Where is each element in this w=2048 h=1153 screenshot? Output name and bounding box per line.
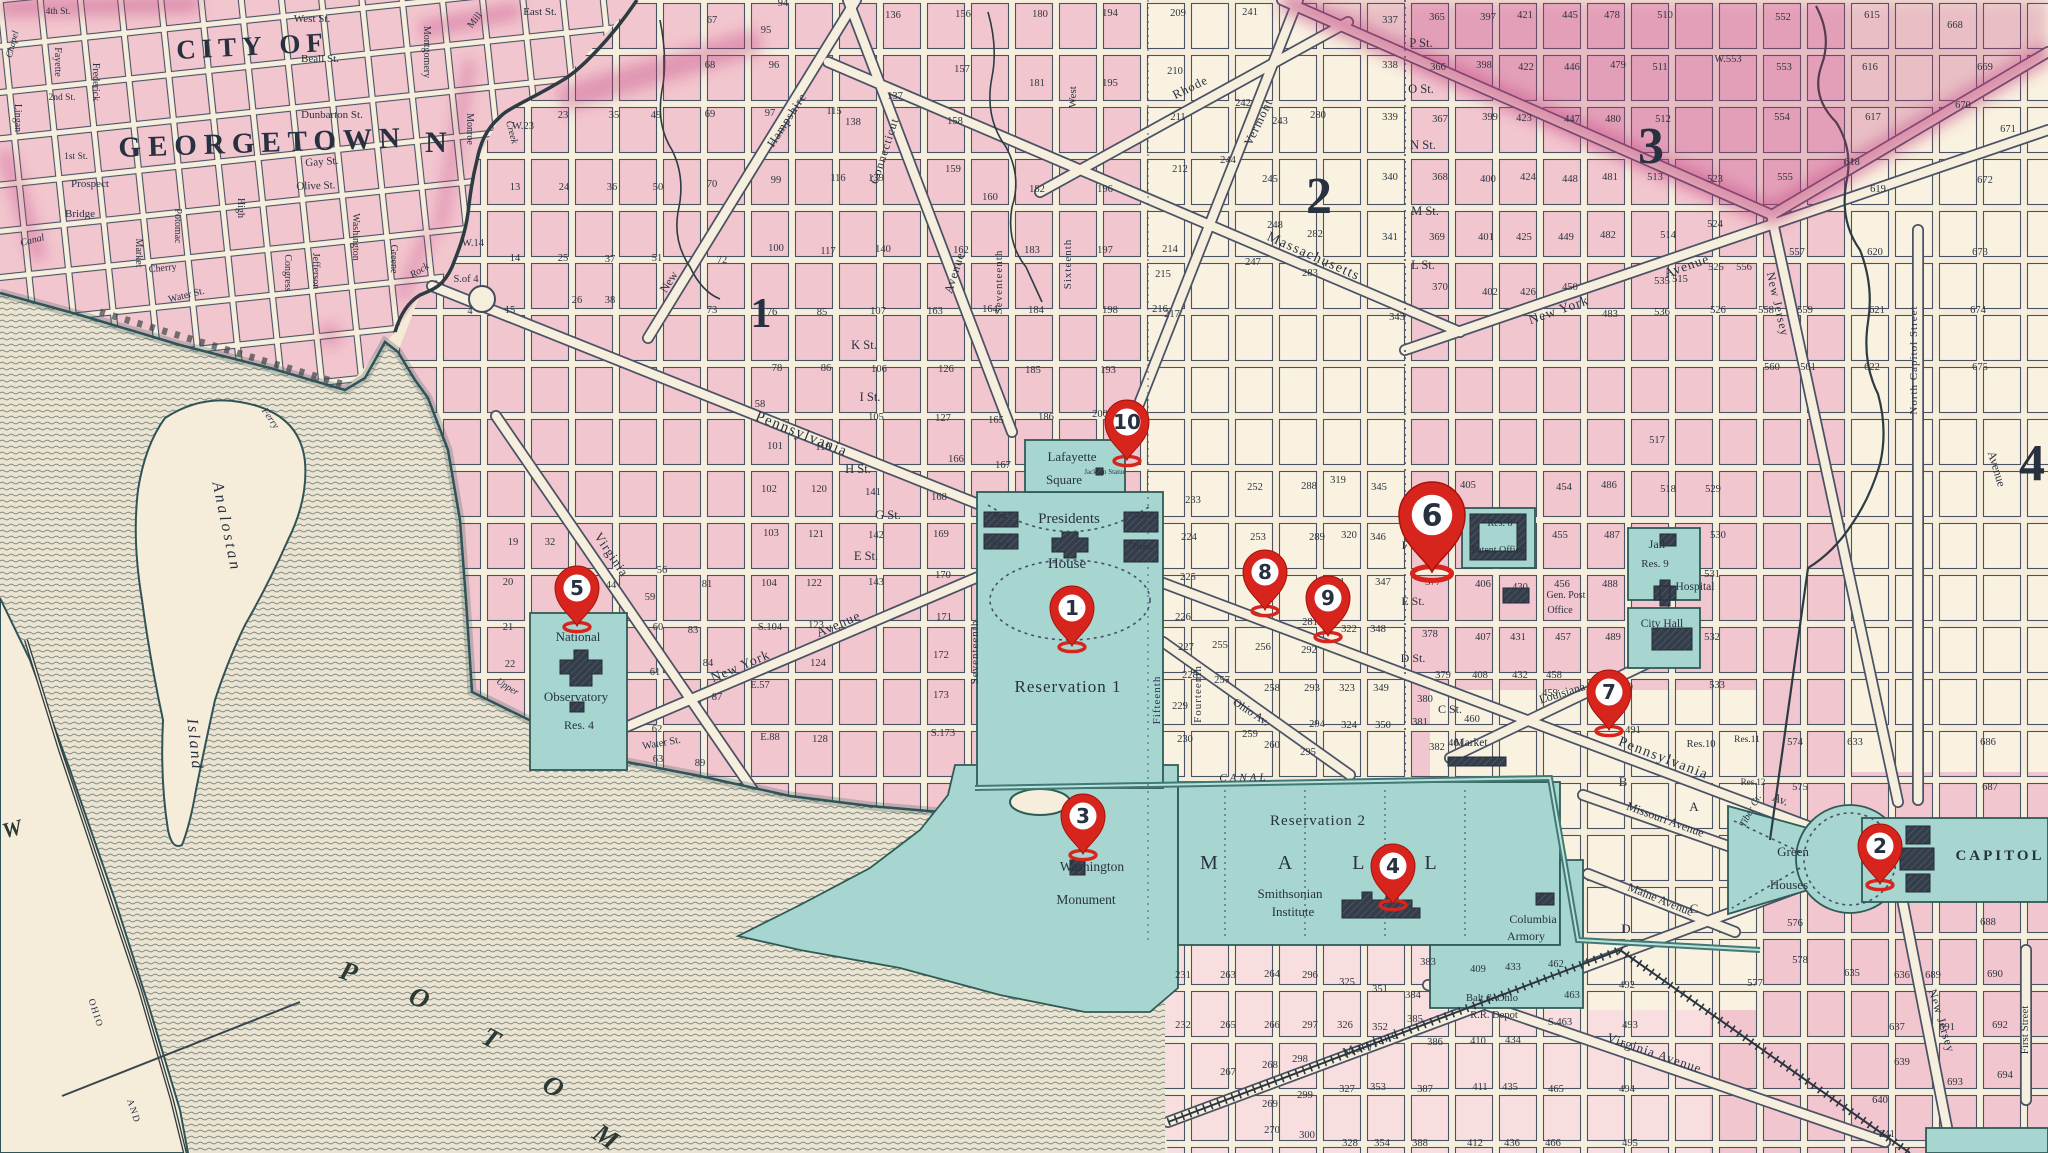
block-number: 421 — [1517, 10, 1533, 21]
block-number: 156 — [955, 9, 971, 20]
block-number: 107 — [870, 306, 886, 317]
block-number: 346 — [1370, 532, 1386, 543]
block-number: 81 — [702, 579, 713, 590]
block-number: 410 — [1470, 1036, 1486, 1047]
pin-number: 10 — [1113, 410, 1141, 434]
map-label: 2nd St. — [49, 93, 76, 103]
block-number: 693 — [1947, 1077, 1963, 1088]
map-label: M St. — [1411, 204, 1439, 218]
map-label: North Capitol Street — [1908, 305, 1920, 414]
map-label: I St. — [860, 390, 881, 404]
map-label: Bridge — [65, 208, 95, 220]
map-label: Res.12 — [1741, 777, 1766, 787]
block-number: 320 — [1341, 530, 1357, 541]
block-number: 169 — [933, 529, 949, 540]
block-number: 197 — [1097, 245, 1113, 256]
block-number: 256 — [1255, 642, 1271, 653]
block-number: 480 — [1605, 114, 1621, 125]
block-number: 140 — [875, 244, 891, 255]
map-label: C — [1690, 901, 1699, 916]
block-number: 267 — [1220, 1067, 1236, 1078]
block-number: 671 — [2000, 124, 2016, 135]
block-number: 116 — [830, 173, 845, 184]
map-label: Montgomery — [421, 26, 432, 78]
map-label: State — [1134, 510, 1151, 520]
block-number: 369 — [1429, 232, 1445, 243]
map-label: G St. — [875, 508, 901, 522]
block-number: 117 — [820, 246, 835, 257]
block-number: 105 — [868, 412, 884, 423]
block-number: 575 — [1792, 782, 1808, 793]
block-number: 248 — [1267, 220, 1283, 231]
block-number: 426 — [1520, 287, 1536, 298]
map-label: House — [1048, 556, 1087, 572]
block-number: 73 — [707, 305, 718, 316]
map-label: H St. — [845, 462, 871, 476]
block-number: 483 — [1602, 309, 1618, 320]
block-number: 399 — [1482, 112, 1498, 123]
map-label: E St. — [1401, 594, 1424, 608]
block-number: 553 — [1776, 62, 1792, 73]
block-number: 411 — [1472, 1082, 1487, 1093]
map-label: 2 — [1306, 168, 1332, 225]
block-number: 380 — [1417, 694, 1433, 705]
block-number: 433 — [1505, 962, 1521, 973]
block-number: 233 — [1185, 495, 1201, 506]
block-number: 49 — [651, 110, 662, 121]
block-number: 673 — [1972, 247, 1988, 258]
pin-number: 8 — [1258, 560, 1272, 584]
block-number: 408 — [1472, 670, 1488, 681]
block-number: 224 — [1181, 532, 1198, 543]
map-label: Smithsonian — [1257, 886, 1323, 901]
block-number: 300 — [1299, 1130, 1315, 1141]
map-label: Treas. — [1132, 541, 1153, 551]
block-number: 288 — [1301, 481, 1317, 492]
block-number: S.463 — [1548, 1017, 1572, 1028]
block-number: 180 — [1032, 9, 1048, 20]
block-number: 456 — [1554, 579, 1570, 590]
block-number: 157 — [954, 64, 970, 75]
block-number: 445 — [1562, 10, 1578, 21]
block-number: 252 — [1247, 482, 1263, 493]
block-number: 338 — [1382, 60, 1398, 71]
block-number: 84 — [703, 658, 714, 669]
block-number: 61 — [650, 667, 661, 678]
pin-number: 5 — [570, 576, 584, 600]
block-number: 514 — [1660, 230, 1677, 241]
block-number: 639 — [1894, 1057, 1910, 1068]
map-label: Frederick — [90, 63, 101, 101]
map-label: 1 — [751, 291, 772, 337]
block-number: 354 — [1374, 1138, 1391, 1149]
block-number: 397 — [1480, 12, 1496, 23]
block-number: 532 — [1704, 632, 1720, 643]
block-number: 620 — [1867, 247, 1883, 258]
block-number: 37 — [605, 254, 616, 265]
map-label: D St. — [1401, 651, 1426, 665]
map-label: City Hall — [1641, 618, 1684, 630]
map-label: A — [1689, 799, 1699, 814]
block-number: 294 — [1309, 719, 1326, 730]
block-number: 430 — [1512, 582, 1528, 593]
block-number: 495 — [1622, 1138, 1638, 1149]
block-number: 230 — [1177, 734, 1193, 745]
map-label: West St. — [294, 13, 331, 25]
block-number: 51 — [652, 253, 663, 264]
block-number: 194 — [1102, 8, 1119, 19]
block-number: 479 — [1610, 60, 1626, 71]
block-number: 21 — [503, 622, 514, 633]
block-number: 172 — [933, 650, 949, 661]
block-number: 50 — [653, 182, 664, 193]
map-label: Seventeenth — [993, 250, 1005, 315]
block-number: 13 — [510, 182, 521, 193]
block-number: 617 — [1865, 112, 1881, 123]
map-label: Res.11 — [1734, 735, 1760, 745]
block-number: 386 — [1427, 1037, 1443, 1048]
block-number: 668 — [1947, 20, 1963, 31]
pin-number: 7 — [1602, 680, 1616, 704]
map-label: Washington — [1060, 859, 1124, 874]
block-number: 559 — [1797, 305, 1813, 316]
map-label: Seventeenth — [969, 620, 981, 685]
columbia-armory-building — [1536, 893, 1554, 905]
map-label: CANAL — [1219, 772, 1268, 785]
block-number: 282 — [1307, 229, 1323, 240]
block-number: 296 — [1302, 970, 1318, 981]
block-number: 577 — [1747, 978, 1763, 989]
block-number: 462 — [1548, 959, 1564, 970]
map-label: Res. 8 — [1488, 518, 1513, 529]
block-number: 209 — [1170, 8, 1186, 19]
block-number: 96 — [769, 60, 780, 71]
block-number: 436 — [1504, 1138, 1520, 1149]
map-label: East St. — [523, 6, 557, 18]
block-number: 640 — [1872, 1095, 1888, 1106]
block-number: 59 — [645, 592, 656, 603]
map-label: Columbia — [1509, 912, 1557, 926]
block-number: 494 — [1619, 1084, 1636, 1095]
block-number: 323 — [1339, 683, 1355, 694]
block-number: 97 — [765, 108, 776, 119]
map-label: Lafayette — [1047, 449, 1096, 464]
pin-number: 4 — [1386, 854, 1400, 878]
map-label: Balt & Ohio — [1466, 993, 1518, 1004]
block-number: 686 — [1980, 737, 1996, 748]
block-number: 226 — [1175, 612, 1191, 623]
block-number: 244 — [1220, 155, 1237, 166]
map-label: Patent Office — [1472, 545, 1525, 556]
block-number: 215 — [1155, 269, 1171, 280]
block-number: 517 — [1649, 435, 1665, 446]
block-number: 555 — [1777, 172, 1793, 183]
map-label: Jefferson — [310, 253, 321, 289]
block-number: 70 — [707, 179, 718, 190]
block-number: 217 — [1164, 309, 1180, 320]
block-number: 326 — [1337, 1020, 1353, 1031]
map-label: Lingan — [12, 104, 23, 132]
block-number: 211 — [1170, 112, 1185, 123]
block-number: 68 — [705, 60, 716, 71]
block-number: 319 — [1330, 475, 1346, 486]
map-label: C St. — [1438, 702, 1462, 716]
block-number: 465 — [1548, 1084, 1564, 1095]
block-number: 56 — [657, 565, 668, 576]
block-number: 126 — [938, 364, 954, 375]
map-label: Navy — [991, 538, 1010, 548]
block-number: 163 — [927, 306, 943, 317]
block-number: 530 — [1710, 530, 1726, 541]
block-number: 381 — [1412, 717, 1428, 728]
map-label: Fifteenth — [1151, 676, 1163, 725]
block-number: 94 — [778, 0, 789, 9]
block-number: 229 — [1172, 701, 1188, 712]
block-number: 350 — [1375, 720, 1391, 731]
block-number: 488 — [1602, 579, 1618, 590]
block-number: 578 — [1792, 955, 1808, 966]
block-number: 405 — [1460, 480, 1476, 491]
block-number: 241 — [1242, 7, 1258, 18]
block-number: 225 — [1180, 572, 1196, 583]
block-number: 60 — [653, 622, 664, 633]
block-number: 463 — [1564, 990, 1580, 1001]
block-number: 23 — [558, 110, 569, 121]
map-label: Jail — [1649, 537, 1666, 551]
block-number: 89 — [695, 758, 706, 769]
block-number: 173 — [933, 690, 949, 701]
block-number: 265 — [1220, 1020, 1236, 1031]
block-number: 283 — [1302, 268, 1318, 279]
block-number: 366 — [1430, 62, 1446, 73]
map-label: Armory — [1507, 929, 1545, 943]
block-number: 424 — [1520, 172, 1537, 183]
block-number: 423 — [1516, 113, 1532, 124]
block-number: 688 — [1980, 917, 1996, 928]
block-number: 245 — [1262, 174, 1278, 185]
block-number: 458 — [1546, 670, 1562, 681]
block-number: 635 — [1844, 968, 1860, 979]
block-number: 158 — [947, 116, 963, 127]
block-number: 407 — [1475, 632, 1491, 643]
block-number: 184 — [1028, 305, 1045, 316]
block-number: 103 — [763, 528, 779, 539]
block-number: 536 — [1654, 307, 1670, 318]
block-number: 36 — [607, 182, 618, 193]
block-number: 353 — [1370, 1082, 1386, 1093]
block-number: 87 — [712, 692, 723, 703]
block-number: 511 — [1652, 62, 1667, 73]
block-number: 687 — [1982, 782, 1998, 793]
map-label: 4th St. — [46, 7, 71, 17]
block-number: 337 — [1382, 15, 1398, 26]
block-number: 196 — [1097, 184, 1113, 195]
block-number: 619 — [1870, 184, 1886, 195]
map-label: Dunbarton St. — [301, 109, 363, 121]
block-number: 523 — [1707, 174, 1723, 185]
map-label: Office — [1547, 605, 1573, 616]
block-number: 489 — [1605, 632, 1621, 643]
block-number: 576 — [1787, 918, 1803, 929]
block-number: E.57 — [750, 680, 770, 691]
block-number: 518 — [1660, 484, 1676, 495]
pin-number: 9 — [1321, 586, 1335, 610]
block-number: S.173 — [931, 728, 955, 739]
block-number: 20 — [503, 577, 514, 588]
block-number: 378 — [1422, 629, 1438, 640]
block-number: 269 — [1262, 1099, 1278, 1110]
block-number: 669 — [1977, 62, 1993, 73]
map-label: Fayette — [52, 47, 63, 77]
block-number: 694 — [1997, 1070, 2014, 1081]
block-number: 574 — [1787, 737, 1804, 748]
map-label: N — [425, 126, 447, 159]
capitol-building-center — [1900, 848, 1934, 870]
block-number: 101 — [767, 441, 783, 452]
block-number: 383 — [1420, 957, 1436, 968]
historic-dc-map[interactable]: W.23233549676869949596971151324365070991… — [0, 0, 2048, 1153]
block-number: 232 — [1175, 1020, 1191, 1031]
block-number: 412 — [1467, 1138, 1483, 1149]
block-number: 257 — [1214, 675, 1230, 686]
block-number: 183 — [1024, 245, 1040, 256]
map-label: Houses — [1770, 877, 1808, 892]
map-label: Res. 4 — [564, 718, 594, 732]
block-number: 343 — [1389, 312, 1405, 323]
block-number: 198 — [1102, 305, 1118, 316]
block-number: 402 — [1482, 287, 1498, 298]
map-label: E St. — [854, 549, 878, 563]
block-number: 193 — [1100, 365, 1116, 376]
block-number: 35 — [609, 110, 620, 121]
block-number: 552 — [1775, 12, 1791, 23]
map-label: K St. — [851, 338, 877, 352]
block-number: 280 — [1310, 110, 1326, 121]
block-number: 385 — [1407, 1014, 1423, 1025]
block-number: 4 — [467, 306, 473, 317]
block-number: 115 — [826, 106, 841, 117]
block-number: 100 — [768, 243, 784, 254]
block-number: W.14 — [462, 238, 485, 249]
block-number: 690 — [1987, 969, 2003, 980]
map-label: Jackson Statue — [1084, 468, 1125, 476]
block-number: 432 — [1512, 670, 1528, 681]
block-number: 266 — [1264, 1020, 1280, 1031]
map-label: Congress — [282, 254, 293, 291]
block-number: 672 — [1977, 175, 1993, 186]
map-label: Market — [133, 239, 144, 268]
block-number: 388 — [1412, 1138, 1428, 1149]
block-number: 44 — [606, 580, 617, 591]
map-label: High — [235, 198, 246, 218]
map-label: Observatory — [544, 689, 609, 704]
block-number: 615 — [1864, 10, 1880, 21]
block-number: 186 — [1038, 412, 1054, 423]
block-number: 136 — [885, 10, 901, 21]
block-number: 491 — [1625, 725, 1641, 736]
block-number: 120 — [811, 484, 827, 495]
block-number: 167 — [995, 460, 1011, 471]
block-number: 181 — [1029, 78, 1045, 89]
block-number: 616 — [1862, 62, 1878, 73]
block-number: 270 — [1264, 1125, 1280, 1136]
map-label: Monument — [1056, 892, 1115, 907]
block-number: 493 — [1622, 1020, 1638, 1031]
pin-number: 3 — [1076, 804, 1090, 828]
block-number: 86 — [821, 363, 832, 374]
block-number: S.104 — [758, 622, 783, 633]
block-number: 69 — [705, 109, 716, 120]
map-label: 3 — [1638, 118, 1664, 175]
block-number: 14 — [510, 253, 521, 264]
map-label: O St. — [1408, 82, 1434, 96]
block-number: 72 — [717, 255, 728, 266]
block-number: 171 — [936, 612, 952, 623]
block-number: 26 — [572, 295, 583, 306]
block-number: 260 — [1264, 740, 1280, 751]
map-label: Gay St. — [305, 155, 339, 169]
block-number: 231 — [1175, 970, 1191, 981]
block-number: 106 — [871, 364, 887, 375]
block-number: 531 — [1704, 569, 1720, 580]
block-number: 675 — [1972, 362, 1988, 373]
block-number: 341 — [1382, 232, 1398, 243]
map-label: Reservation 1 — [1015, 677, 1122, 696]
block-number: 255 — [1212, 640, 1228, 651]
block-number: 259 — [1242, 729, 1258, 740]
block-number: 292 — [1301, 645, 1317, 656]
block-number: 482 — [1600, 230, 1616, 241]
map-label: 1st St. — [64, 152, 88, 162]
block-number: 670 — [1955, 100, 1971, 111]
block-number: 166 — [948, 454, 964, 465]
capitol-building-south — [1906, 874, 1930, 892]
block-number: 351 — [1372, 984, 1388, 995]
map-label: West — [1067, 86, 1079, 108]
block-number: 195 — [1102, 78, 1118, 89]
block-number: 557 — [1789, 247, 1805, 258]
block-number: 425 — [1516, 232, 1532, 243]
block-number: 621 — [1869, 305, 1885, 316]
block-number: 15 — [505, 305, 516, 316]
map-label: R.R. Depot — [1470, 1010, 1518, 1021]
block-number: 554 — [1774, 112, 1791, 123]
block-number: 322 — [1341, 624, 1357, 635]
block-number: 368 — [1432, 172, 1448, 183]
map-label: Market — [1454, 737, 1488, 749]
block-number: 492 — [1619, 980, 1635, 991]
block-number: 242 — [1235, 98, 1251, 109]
block-number: 170 — [935, 570, 951, 581]
block-number: W.553 — [1714, 54, 1741, 65]
block-number: 434 — [1505, 1035, 1522, 1046]
block-number: 99 — [771, 175, 782, 186]
block-number: 210 — [1167, 66, 1183, 77]
block-number: 227 — [1178, 642, 1194, 653]
map-label: Potomac — [172, 209, 183, 245]
map-label: Fourteenth — [1192, 665, 1204, 723]
block-number: 622 — [1864, 362, 1880, 373]
block-number: 247 — [1245, 257, 1261, 268]
southeast-canal-strip — [1926, 1128, 2048, 1153]
block-number: 636 — [1894, 970, 1910, 981]
block-number: 455 — [1552, 530, 1568, 541]
block-number: 19 — [508, 537, 519, 548]
block-number: 641 — [1879, 1129, 1895, 1140]
block-number: 447 — [1564, 114, 1580, 125]
block-number: 328 — [1342, 1138, 1358, 1149]
block-number: 122 — [806, 578, 822, 589]
